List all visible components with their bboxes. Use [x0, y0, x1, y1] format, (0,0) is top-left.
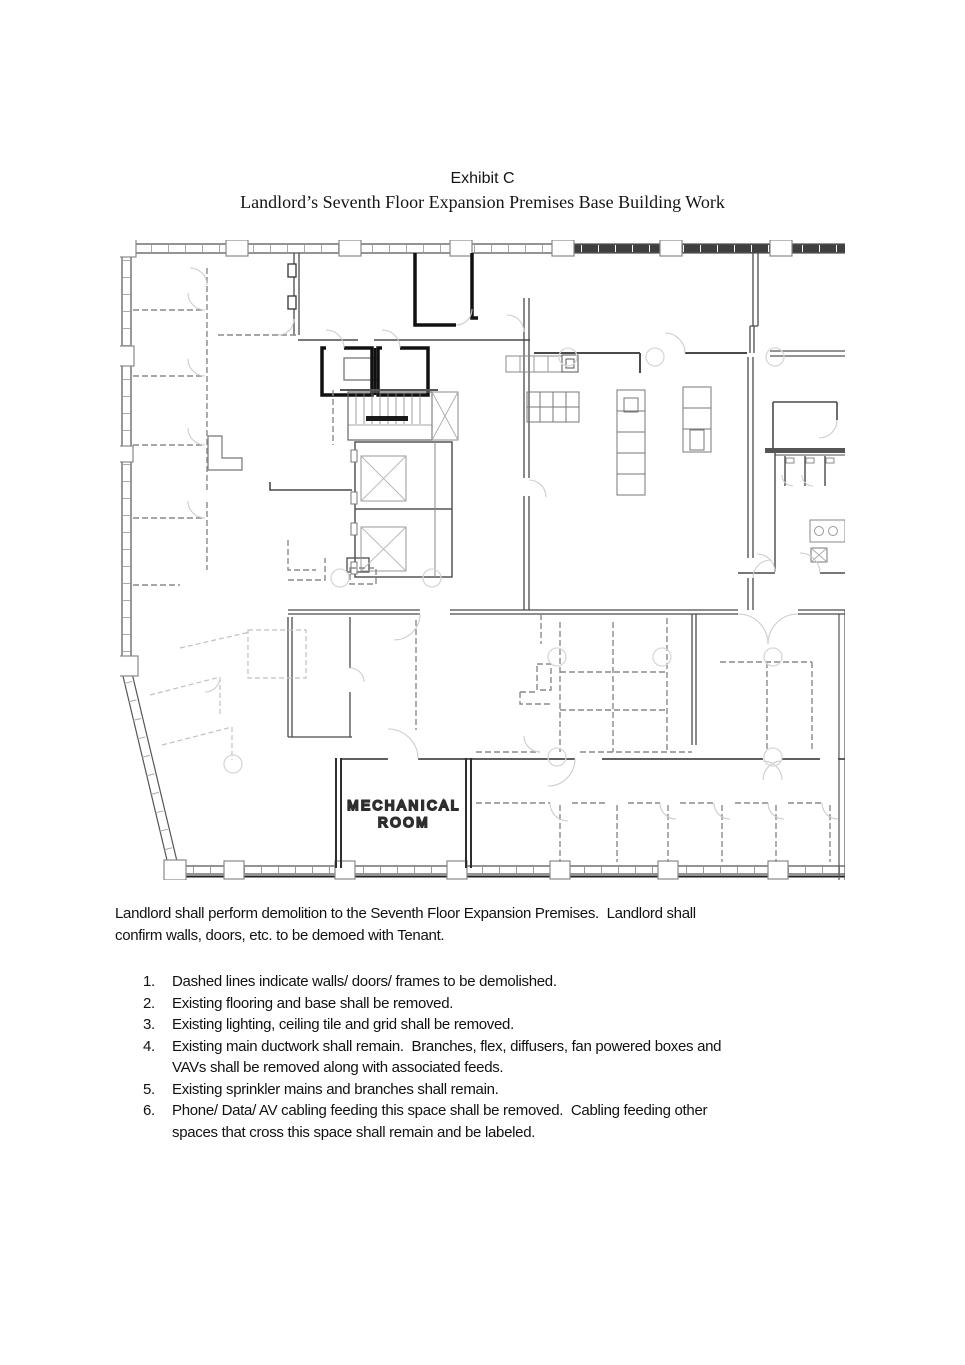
list-item: 3. Existing lighting, ceiling tile and g…: [143, 1014, 855, 1036]
mechanical-room: MECHANICAL ROOM: [336, 758, 471, 868]
mechanical-room-label-line2: ROOM: [378, 815, 430, 830]
document-page: Exhibit C Landlord’s Seventh Floor Expan…: [0, 0, 965, 1365]
demolition-dashed-walls: [133, 268, 830, 862]
stairs: [340, 390, 458, 440]
exhibit-subtitle: Landlord’s Seventh Floor Expansion Premi…: [0, 192, 965, 213]
list-item-number: 1.: [143, 971, 172, 993]
door-swings: [188, 268, 838, 821]
list-item-text: Existing main ductwork shall remain. Bra…: [172, 1036, 855, 1079]
faint-demolition-walls: [150, 630, 306, 760]
list-item: 1. Dashed lines indicate walls/ doors/ f…: [143, 971, 855, 993]
demolition-notes-list: 1. Dashed lines indicate walls/ doors/ f…: [143, 971, 855, 1143]
list-item-number: 2.: [143, 993, 172, 1015]
black-partition-walls: [322, 253, 478, 395]
solid-interior-walls: [208, 253, 845, 759]
mechanical-room-label-line1: MECHANICAL: [347, 798, 461, 813]
elevator-core: [351, 442, 452, 577]
exhibit-title: Exhibit C: [0, 170, 965, 188]
list-item-text: Dashed lines indicate walls/ doors/ fram…: [172, 971, 855, 993]
intro-paragraph: Landlord shall perform demolition to the…: [115, 903, 875, 946]
floor-plan: MECHANICAL ROOM: [120, 240, 845, 880]
list-item: 2. Existing flooring and base shall be r…: [143, 993, 855, 1015]
list-item-text: Existing flooring and base shall be remo…: [172, 993, 855, 1015]
list-item: 4. Existing main ductwork shall remain. …: [143, 1036, 855, 1079]
exterior-walls: [120, 240, 845, 880]
list-item-number: 6.: [143, 1100, 172, 1143]
list-item: 6. Phone/ Data/ AV cabling feeding this …: [143, 1100, 855, 1143]
list-item-number: 4.: [143, 1036, 172, 1079]
list-item-text: Phone/ Data/ AV cabling feeding this spa…: [172, 1100, 855, 1143]
restrooms: [738, 402, 845, 573]
furniture: [506, 355, 711, 495]
list-item-text: Existing lighting, ceiling tile and grid…: [172, 1014, 855, 1036]
list-item-number: 3.: [143, 1014, 172, 1036]
column-markers: [224, 348, 784, 773]
list-item-text: Existing sprinkler mains and branches sh…: [172, 1079, 855, 1101]
list-item: 5. Existing sprinkler mains and branches…: [143, 1079, 855, 1101]
list-item-number: 5.: [143, 1079, 172, 1101]
